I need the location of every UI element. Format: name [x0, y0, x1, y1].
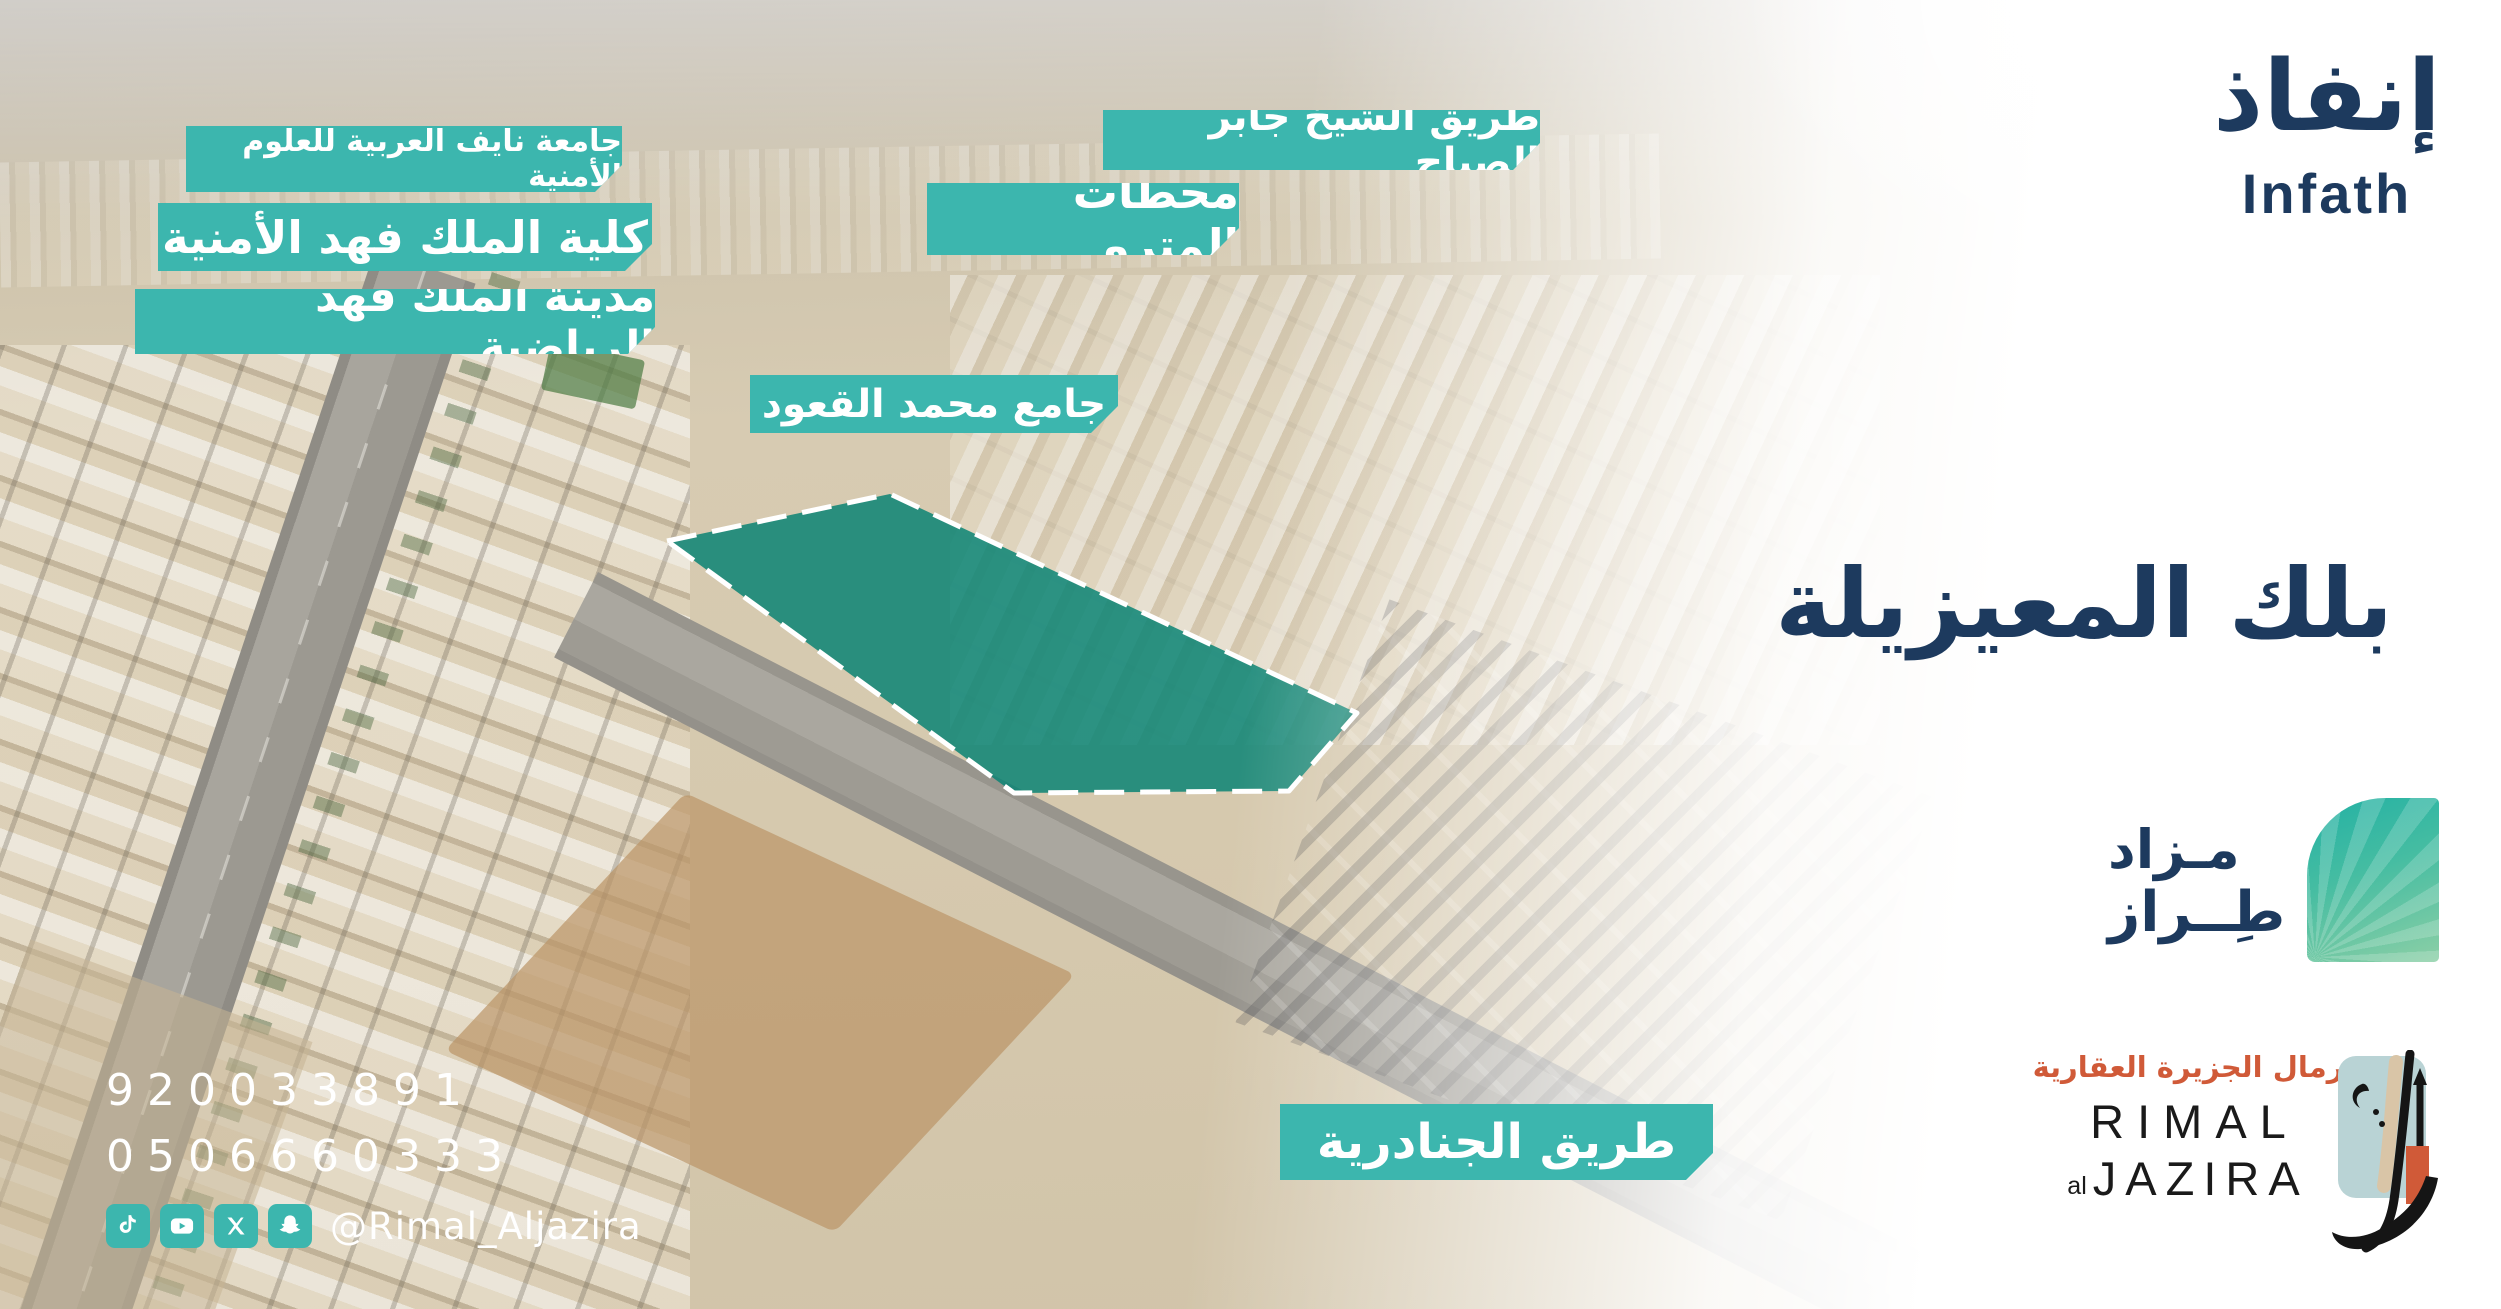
- mazad-tiraz-wordmark: مـزاد طِــراز: [2108, 820, 2285, 947]
- rimal-aljazira-logo: رمال الجزيرة العقارية RIMAL al JAZIRA: [2052, 1050, 2446, 1260]
- x-icon[interactable]: [214, 1204, 258, 1248]
- youtube-icon[interactable]: [160, 1204, 204, 1248]
- phone-number-2: 0506660333: [106, 1124, 642, 1190]
- phone-number-1: 920033891: [106, 1058, 642, 1124]
- rimal-english-line1: RIMAL: [2077, 1094, 2299, 1149]
- rimal-arabic-name: رمال الجزيرة العقارية: [2033, 1050, 2344, 1084]
- label-janadriyah-road: طريق الجنادرية: [1280, 1104, 1713, 1180]
- rimal-al-prefix: al: [2067, 1166, 2086, 1206]
- rimal-english-line2: JAZIRA: [2093, 1151, 2309, 1206]
- label-sheikh-jaber-alsabah-road: طريق الشيخ جابر الصباح: [1103, 110, 1540, 170]
- mazad-tiraz-logo: مـزاد طِــراز: [2108, 798, 2439, 962]
- page-title: بلك المعيزيلة: [1775, 548, 2393, 660]
- tiktok-icon[interactable]: [106, 1204, 150, 1248]
- infath-logo: إنفاذ Infath: [2213, 36, 2441, 226]
- snapchat-icon[interactable]: [268, 1204, 312, 1248]
- contact-block: 920033891 0506660333 @Rimal_Aljazira: [106, 1058, 642, 1248]
- tiraz-word: طِــراز: [2108, 879, 2285, 946]
- label-naif-university: جامعة نايف العربية للعلوم الأمنية: [186, 126, 622, 192]
- social-handle[interactable]: @Rimal_Aljazira: [330, 1205, 642, 1248]
- real-estate-poster: جامعة نايف العربية للعلوم الأمنية كلية ا…: [0, 0, 2501, 1309]
- social-row: @Rimal_Aljazira: [106, 1204, 642, 1248]
- infath-arabic-wordmark: إنفاذ: [2213, 36, 2441, 159]
- rimal-calligraphy-emblem: [2330, 1050, 2446, 1260]
- rimal-wordmark: رمال الجزيرة العقارية RIMAL al JAZIRA: [2052, 1050, 2324, 1206]
- label-king-fahd-security-college: كلية الملك فهد الأمنية: [158, 203, 652, 271]
- mazad-leaf-icon: [2307, 798, 2439, 962]
- label-mohammed-alqaoud-mosque: جامع محمد القعود: [750, 375, 1118, 433]
- mazad-word: مـزاد: [2108, 820, 2240, 879]
- infath-english-wordmark: Infath: [2213, 161, 2441, 226]
- label-metro-stations: محطات المترو: [927, 183, 1239, 255]
- label-king-fahd-sports-city: مدينة الملك فهد الرياضية: [135, 289, 655, 354]
